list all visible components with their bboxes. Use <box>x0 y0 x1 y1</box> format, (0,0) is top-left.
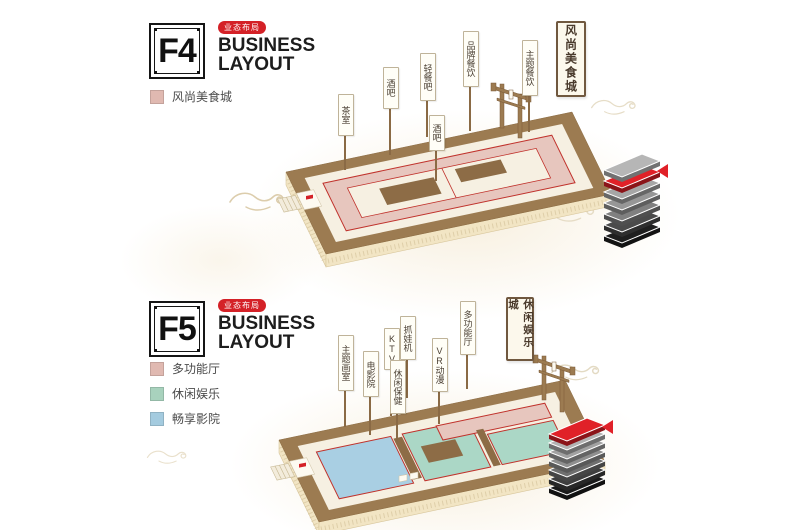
f5-floor-number: F5 <box>151 303 203 355</box>
flag-light-dining: 轻餐吧 <box>420 53 436 101</box>
legend-label: 风尚美食城 <box>172 88 232 105</box>
f4-floor-number: F4 <box>151 25 203 77</box>
flag-cinema: 电影院 <box>363 351 379 397</box>
f4-floor-stack-icon <box>600 152 670 252</box>
legend-label: 畅享影院 <box>172 410 220 427</box>
f5-zone-sign: 休闲娱乐城 <box>506 297 534 361</box>
f5-badge: 业态布局 <box>218 299 266 312</box>
f5-floor-stack-icon <box>545 416 615 504</box>
legend-label: 多功能厅 <box>172 360 220 377</box>
flag-pole <box>426 99 428 137</box>
f4-legend-item: 风尚美食城 <box>150 88 232 105</box>
flag-pole <box>369 395 371 435</box>
f5-legend-item: 休闲娱乐 <box>150 385 220 402</box>
f4-building-illustration <box>262 72 622 282</box>
flag-pole <box>528 94 530 132</box>
kiosk <box>399 474 407 482</box>
flag-bar: 酒吧 <box>383 67 399 109</box>
legend-label: 休闲娱乐 <box>172 385 220 402</box>
flag-pole <box>466 353 468 389</box>
flag-pole <box>469 85 471 131</box>
flag-pole <box>389 107 391 155</box>
flag-multifunction-hall: 多功能厅 <box>460 301 476 355</box>
flag-theme-dining: 主题餐饮 <box>522 40 538 96</box>
f4-badge: 业态布局 <box>218 21 266 34</box>
cloud-swirl-icon <box>146 446 192 466</box>
flag-pole <box>396 412 398 442</box>
f5-legend-item: 畅享影院 <box>150 410 220 427</box>
flag-pole <box>344 389 346 427</box>
flag-bar-inner: 酒吧 <box>429 115 445 151</box>
floor-arrow-icon <box>602 420 613 434</box>
flag-pole <box>435 149 437 181</box>
kiosk <box>410 472 418 480</box>
legend-swatch <box>150 387 164 401</box>
flag-pole <box>406 358 408 398</box>
flag-leisure-health: 休闲保健 <box>390 360 406 414</box>
flag-pole <box>438 390 440 424</box>
f4-floor-box: F4 <box>149 23 205 79</box>
flag-tea-room: 茶室 <box>338 94 354 136</box>
legend-swatch <box>150 362 164 376</box>
flag-claw-machine: 抓娃机 <box>400 316 416 360</box>
poster-canvas: F4 业态布局 BUSINESS LAYOUT 风尚美食城 <box>0 0 800 530</box>
flag-pole <box>344 134 346 170</box>
f4-title-line1: BUSINESS <box>218 36 315 55</box>
flag-brand-dining: 品牌餐饮 <box>463 31 479 87</box>
flag-vr-anime: VR动漫 <box>432 338 448 392</box>
legend-swatch <box>150 90 164 104</box>
legend-swatch <box>150 412 164 426</box>
flag-theme-studio: 主题画室 <box>338 335 354 391</box>
f4-zone-sign: 风尚美食城 <box>556 21 586 97</box>
f5-floor-box: F5 <box>149 301 205 357</box>
f5-legend-item: 多功能厅 <box>150 360 220 377</box>
